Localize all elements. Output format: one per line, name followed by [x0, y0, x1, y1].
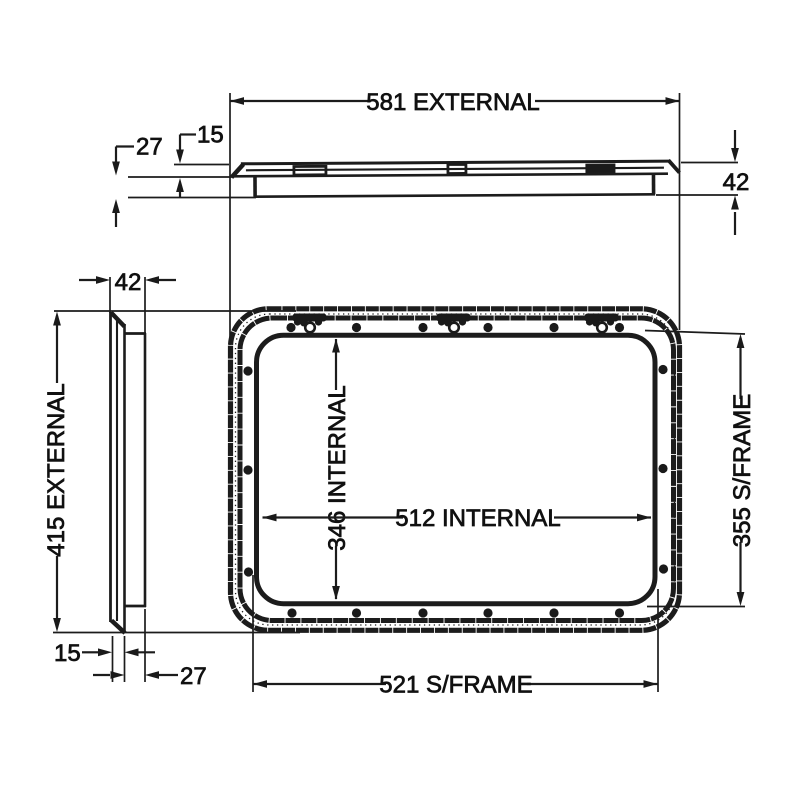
svg-text:15: 15 — [197, 122, 224, 149]
svg-text:346 INTERNAL: 346 INTERNAL — [324, 385, 351, 550]
svg-text:355 S/FRAME: 355 S/FRAME — [729, 394, 756, 547]
svg-text:512 INTERNAL: 512 INTERNAL — [395, 505, 560, 532]
svg-text:581 EXTERNAL: 581 EXTERNAL — [366, 89, 539, 116]
svg-text:27: 27 — [136, 134, 163, 161]
svg-text:521 S/FRAME: 521 S/FRAME — [379, 672, 532, 699]
svg-text:42: 42 — [115, 269, 142, 296]
svg-text:42: 42 — [723, 169, 750, 196]
svg-text:15: 15 — [54, 640, 81, 667]
svg-text:27: 27 — [180, 663, 207, 690]
svg-text:415 EXTERNAL: 415 EXTERNAL — [43, 383, 70, 556]
